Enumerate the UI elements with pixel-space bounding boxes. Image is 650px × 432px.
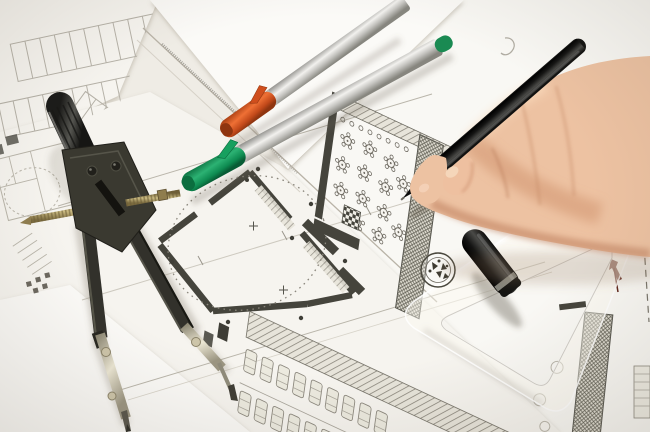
photo-architect-workspace (0, 0, 650, 432)
vignette-overlay (0, 0, 650, 432)
photo-canvas (0, 0, 650, 432)
